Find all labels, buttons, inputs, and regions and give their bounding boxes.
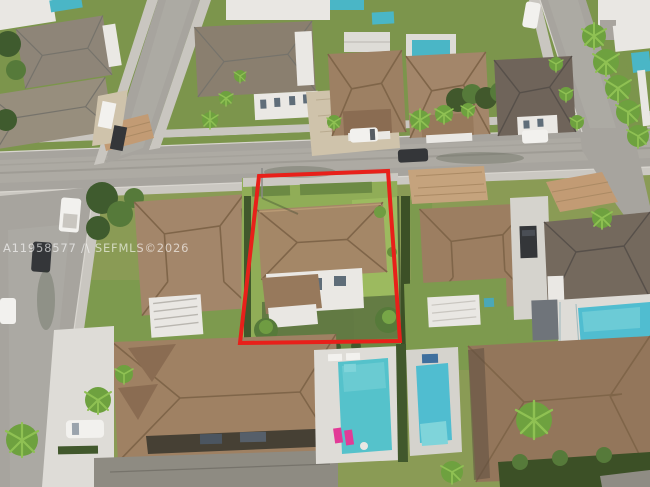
gazebo-lawn-south [404,278,508,352]
subject-house [257,202,387,280]
aerial-photo: A11958577 /\ SEFMLS©2026 [0,0,650,487]
tree-shadow [436,152,524,164]
swimming-pool [631,51,650,73]
white-car [66,420,104,439]
pool-yard-1 [314,344,408,464]
pool-yard-2 [406,347,462,456]
hedge-between-pools [396,344,408,462]
swimming-pool [372,11,395,24]
bush [374,206,386,218]
dark-car [398,148,429,163]
white-car [0,298,16,324]
slate-structure [531,300,558,341]
spa [420,421,448,446]
highlighted-lot [241,168,401,344]
white-car [522,129,549,143]
house-south-big [112,334,340,462]
vehicle-under-roof [200,434,222,444]
swimming-pool [412,40,450,56]
pergola-west [149,294,204,338]
vehicle-under-roof [240,432,266,442]
mls-watermark: A11958577 /\ SEFMLS©2026 [3,241,189,255]
tree-shadow [37,270,55,330]
paver-driveway [408,166,488,204]
tree [6,60,26,80]
